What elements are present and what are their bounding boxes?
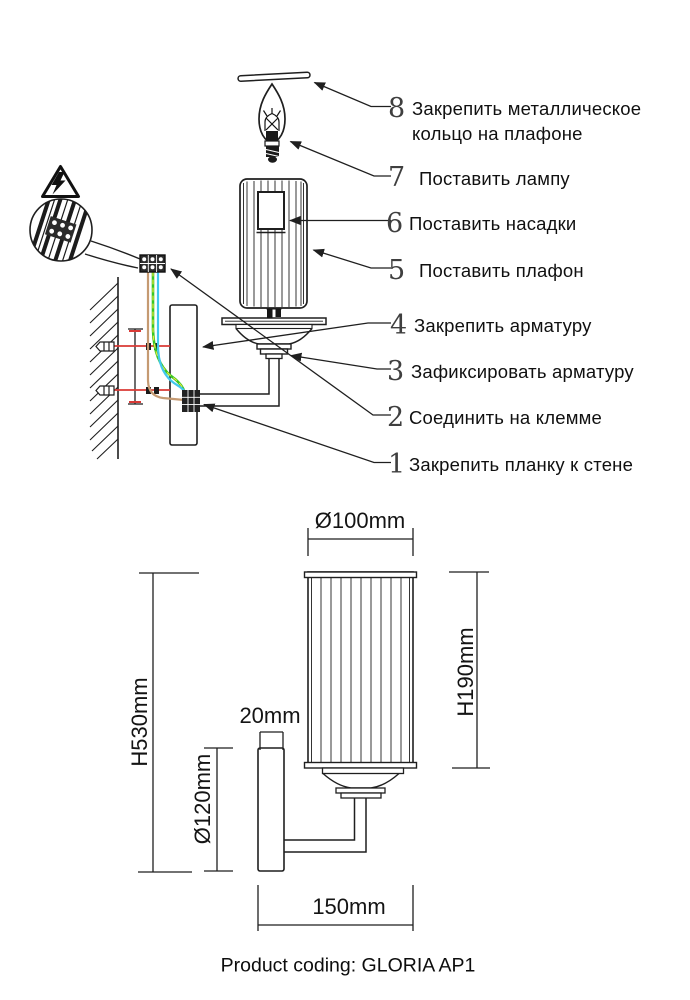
fixture-arm xyxy=(198,359,280,407)
shade-nozzle xyxy=(257,192,286,233)
metal-ring xyxy=(238,72,310,81)
step-label-line: Поставить насадки xyxy=(409,211,576,236)
dim-label-wall-projection: 150mm xyxy=(312,894,385,920)
side-view-backplate xyxy=(258,748,284,871)
light-bulb xyxy=(259,84,285,163)
step-label-line: Зафиксировать арматуру xyxy=(411,359,634,384)
leader-line-1 xyxy=(204,405,391,463)
step-label: Поставить лампу xyxy=(419,166,570,191)
terminal-block-lower xyxy=(182,390,200,412)
screw-bracket xyxy=(128,329,143,404)
step-label: Закрепить планку к стене xyxy=(409,452,633,477)
magnifier-detail xyxy=(30,191,140,268)
step-label: Поставить плафон xyxy=(419,258,584,283)
step-number: 5 xyxy=(388,257,405,284)
mounting-strip xyxy=(170,305,197,445)
step-label: Закрепить арматуру xyxy=(414,313,592,338)
instruction-sheet: 8 Закрепить металлическое кольцо на плаф… xyxy=(0,0,690,1000)
step-label-line: Соединить на клемме xyxy=(409,405,602,430)
canopy-plate xyxy=(222,318,326,329)
step-label-line: Поставить плафон xyxy=(419,258,584,283)
side-view-shade xyxy=(305,572,417,798)
dim-label-shade-height: H190mm xyxy=(453,627,479,716)
step-label: Зафиксировать арматуру xyxy=(411,359,634,384)
electric-warning-icon xyxy=(43,167,79,197)
step-number: 4 xyxy=(390,312,407,339)
step-number: 1 xyxy=(388,451,405,478)
step-number: 7 xyxy=(388,164,405,191)
step-number: 2 xyxy=(387,404,404,431)
step-label-line: Закрепить металлическое xyxy=(412,96,641,121)
step-number: 3 xyxy=(387,358,404,385)
side-view-arm xyxy=(284,798,366,852)
step-number: 8 xyxy=(388,95,405,122)
step-label: Поставить насадки xyxy=(409,211,576,236)
wall xyxy=(90,277,118,459)
step-label-line: кольцо на плафоне xyxy=(412,121,641,146)
step-label-line: Поставить лампу xyxy=(419,166,570,191)
terminal-block-top xyxy=(140,255,165,272)
leader-line-7 xyxy=(291,142,392,177)
dim-label-backplate-height: Ø120mm xyxy=(190,754,216,844)
dim-label-backplate-depth: 20mm xyxy=(239,703,300,729)
step-label: Соединить на клемме xyxy=(409,405,602,430)
dim-label-shade-diameter: Ø100mm xyxy=(315,508,405,534)
assembly-and-dimension-drawing xyxy=(0,0,690,1000)
dimension-drawing xyxy=(138,528,490,931)
step-label: Закрепить металлическое кольцо на плафон… xyxy=(412,96,641,146)
product-coding: Product coding: GLORIA AP1 xyxy=(221,955,476,978)
leader-line-8 xyxy=(315,83,392,107)
step-label-line: Закрепить арматуру xyxy=(414,313,592,338)
step-label-line: Закрепить планку к стене xyxy=(409,452,633,477)
lampshade xyxy=(240,179,307,308)
wall-anchor xyxy=(96,342,114,395)
magnifier-callout-tail xyxy=(85,241,140,268)
leader-line-5 xyxy=(314,250,392,268)
dim-label-total-height: H530mm xyxy=(127,677,153,766)
step-number: 6 xyxy=(386,210,403,237)
